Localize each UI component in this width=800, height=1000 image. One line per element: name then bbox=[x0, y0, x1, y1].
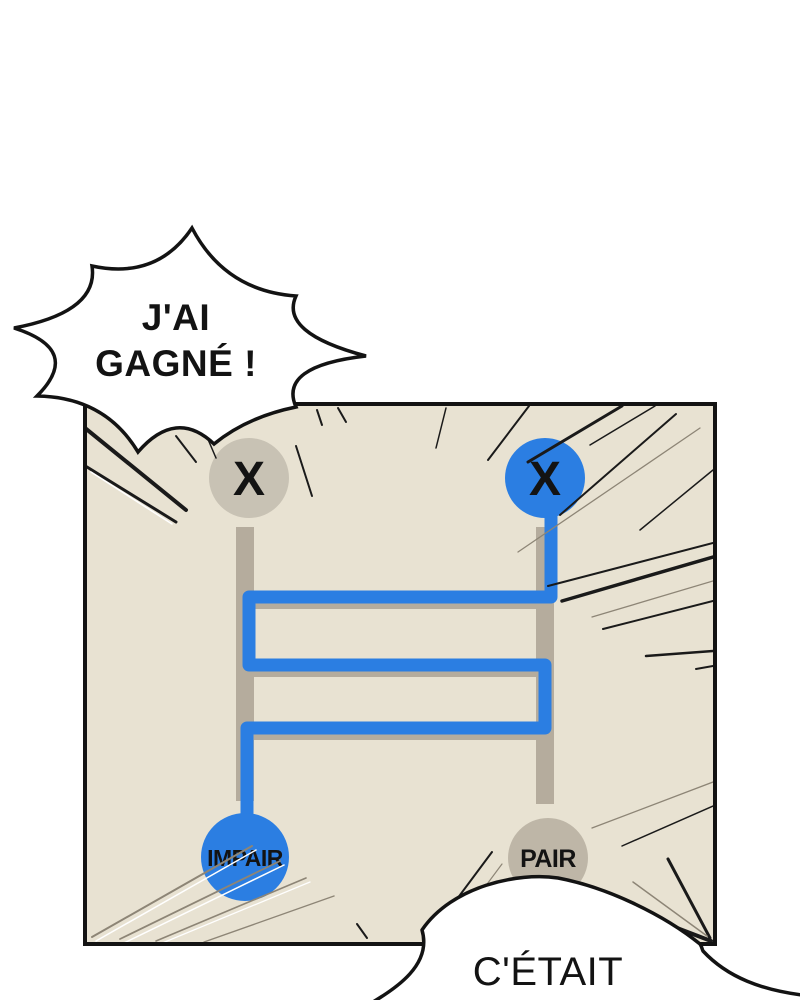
shout-text-line2: GAGNÉ ! bbox=[95, 343, 257, 384]
node-pair-label: PAIR bbox=[520, 845, 576, 873]
comic-scene: X X IMPAIR PAIR bbox=[0, 0, 800, 1000]
node-top-right-label: X bbox=[529, 453, 561, 506]
panel-border-left-overlay bbox=[83, 404, 87, 944]
comic-page: X X IMPAIR PAIR bbox=[0, 0, 800, 1000]
shout-text-line1: J'AI bbox=[142, 297, 210, 338]
bottom-bubble-text: C'ÉTAIT bbox=[473, 949, 623, 994]
node-top-left-label: X bbox=[233, 453, 265, 506]
